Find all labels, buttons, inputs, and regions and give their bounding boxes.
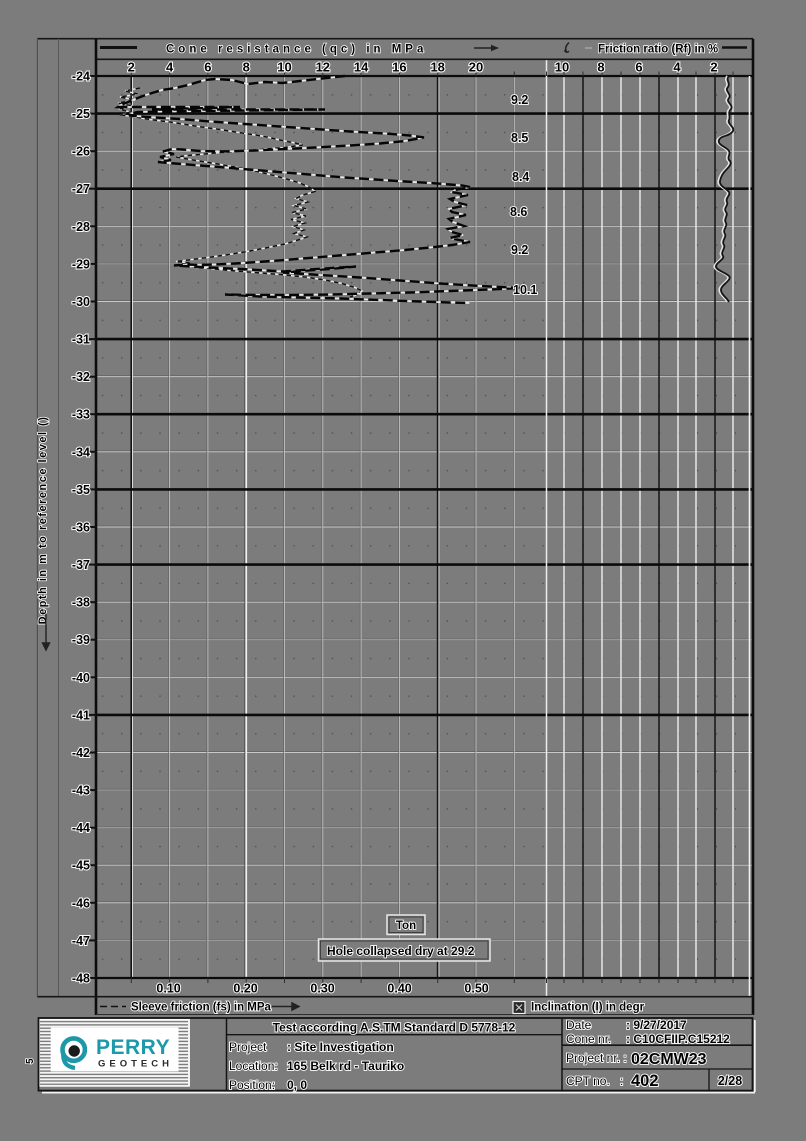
svg-text:9.2: 9.2 [511, 243, 528, 257]
svg-text:10.1: 10.1 [513, 283, 537, 297]
svg-text:Date: Date [566, 1018, 592, 1032]
svg-text:: 9/27/2017: : 9/27/2017 [626, 1018, 687, 1032]
svg-text:-25: -25 [72, 107, 90, 121]
svg-text:2: 2 [710, 60, 717, 75]
svg-text:-46: -46 [72, 896, 90, 910]
svg-text:-29: -29 [72, 257, 90, 271]
svg-text:18: 18 [430, 60, 444, 75]
svg-text:Cone nr.: Cone nr. [566, 1032, 611, 1046]
svg-text:0.30: 0.30 [310, 982, 334, 996]
svg-text:Depth in m to reference level: Depth in m to reference level () [37, 416, 49, 625]
svg-text:Test according A.S.TM Standard: Test according A.S.TM Standard D 5778-12 [273, 1021, 516, 1035]
svg-text:4: 4 [673, 60, 681, 75]
svg-text:-26: -26 [72, 145, 90, 159]
svg-text:8.6: 8.6 [510, 205, 527, 219]
svg-text:-39: -39 [72, 633, 90, 647]
svg-text:8: 8 [597, 60, 604, 75]
svg-text:Sleeve friction (fs) in MPa: Sleeve friction (fs) in MPa [131, 1002, 272, 1014]
svg-text:8.4: 8.4 [512, 170, 529, 184]
svg-text:-32: -32 [72, 370, 90, 384]
svg-text:-37: -37 [72, 558, 90, 572]
svg-text:16: 16 [392, 60, 406, 75]
svg-text:6: 6 [204, 60, 211, 75]
svg-text:-24: -24 [72, 70, 90, 84]
svg-text:GEOTECH: GEOTECH [98, 1059, 173, 1070]
svg-text:-38: -38 [72, 596, 90, 610]
svg-text:14: 14 [354, 60, 369, 75]
svg-text:20: 20 [469, 60, 483, 75]
svg-text:-35: -35 [72, 483, 90, 497]
svg-text:Inclination (I) in degr: Inclination (I) in degr [531, 1002, 645, 1014]
svg-text:Cone resistance (qc) in MPa: Cone resistance (qc) in MPa [166, 44, 427, 56]
svg-text:9.2: 9.2 [511, 93, 528, 107]
svg-text:CPT no.: CPT no. [566, 1074, 610, 1088]
svg-text:2: 2 [128, 60, 135, 75]
svg-text:-42: -42 [72, 746, 90, 760]
svg-text:Ton: Ton [396, 920, 416, 932]
svg-text:PERRY: PERRY [96, 1036, 170, 1059]
svg-text:0.10: 0.10 [156, 982, 180, 996]
svg-text:-48: -48 [72, 972, 90, 986]
svg-text:-47: -47 [72, 934, 90, 948]
svg-text:-44: -44 [72, 821, 90, 835]
svg-text:4: 4 [166, 60, 174, 75]
svg-text:-27: -27 [72, 182, 90, 196]
svg-text:8.5: 8.5 [511, 131, 528, 145]
svg-text:-41: -41 [72, 708, 90, 722]
svg-text:Project: Project [229, 1040, 267, 1054]
svg-text:-40: -40 [72, 671, 90, 685]
svg-text::: : [620, 1074, 623, 1088]
svg-text:165 Belk rd - Tauriko: 165 Belk rd - Tauriko [287, 1059, 404, 1073]
svg-text:Location:: Location: [229, 1059, 278, 1073]
svg-text:10: 10 [555, 60, 569, 75]
svg-text:10: 10 [277, 60, 291, 75]
svg-text:0.20: 0.20 [233, 982, 257, 996]
svg-text:12: 12 [316, 60, 330, 75]
svg-text:-36: -36 [72, 521, 90, 535]
svg-text:8: 8 [243, 60, 250, 75]
svg-text:-33: -33 [72, 408, 90, 422]
svg-text:Hole collapsed dry at 29.2: Hole collapsed dry at 29.2 [327, 944, 475, 958]
svg-text:-45: -45 [72, 859, 90, 873]
svg-text:Position:: Position: [229, 1078, 275, 1092]
svg-text:402: 402 [631, 1072, 659, 1090]
svg-text:: Site Investigation: : Site Investigation [287, 1040, 394, 1054]
svg-text:Friction ratio (Rf) in %: Friction ratio (Rf) in % [598, 44, 718, 56]
svg-text:: C10CFIIP.C15212: : C10CFIIP.C15212 [626, 1032, 730, 1046]
svg-text:0.50: 0.50 [464, 982, 488, 996]
svg-text:0.40: 0.40 [387, 982, 411, 996]
svg-text:2/28: 2/28 [718, 1074, 742, 1088]
svg-text:-28: -28 [72, 220, 90, 234]
svg-text:02CMW23: 02CMW23 [631, 1051, 707, 1068]
svg-text:5: 5 [25, 1058, 36, 1064]
svg-text:6: 6 [635, 60, 642, 75]
svg-text:-43: -43 [72, 784, 90, 798]
svg-text:-30: -30 [72, 295, 90, 309]
svg-text:Project nr. :: Project nr. : [566, 1051, 627, 1065]
svg-text:0, 0: 0, 0 [287, 1078, 307, 1092]
svg-text:-31: -31 [72, 333, 90, 347]
svg-text:-34: -34 [72, 445, 90, 459]
